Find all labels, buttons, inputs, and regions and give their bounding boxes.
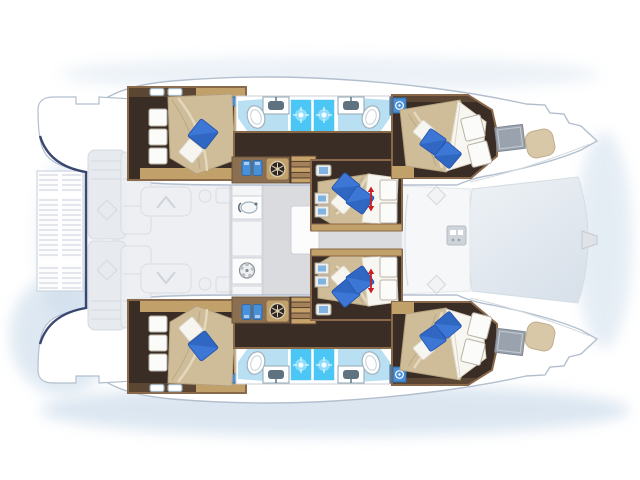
anchor-locker-console [447, 226, 466, 245]
yacht-layout-plan: Catamaran yacht interior layout plan, to… [0, 0, 640, 480]
hob-burner-icon [232, 258, 262, 284]
forward-cockpit [402, 186, 470, 294]
galley-sink-icon [232, 196, 262, 219]
galley-cabinet [232, 221, 262, 256]
floorplan-canvas: Catamaran yacht interior layout plan, to… [0, 0, 640, 480]
aft-platform-grating [37, 171, 83, 291]
trampoline [469, 177, 588, 303]
